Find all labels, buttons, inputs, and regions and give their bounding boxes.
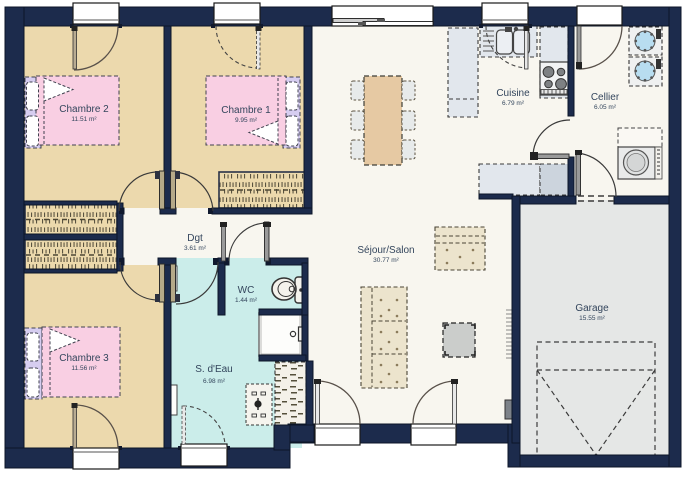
svg-text:30.77 m²: 30.77 m²: [373, 257, 399, 264]
svg-text:9.95 m²: 9.95 m²: [235, 117, 258, 124]
svg-text:Chambre 3: Chambre 3: [59, 353, 109, 364]
svg-text:11.56 m²: 11.56 m²: [71, 365, 97, 372]
svg-text:Séjour/Salon: Séjour/Salon: [357, 245, 414, 256]
svg-text:S. d'Eau: S. d'Eau: [195, 364, 233, 375]
svg-text:6.05 m²: 6.05 m²: [594, 104, 617, 111]
svg-text:Dgt: Dgt: [187, 233, 203, 244]
svg-text:6.79 m²: 6.79 m²: [502, 100, 525, 107]
svg-text:Cellier: Cellier: [591, 92, 620, 103]
svg-text:WC: WC: [238, 285, 255, 296]
svg-text:15.55 m²: 15.55 m²: [579, 315, 605, 322]
svg-text:Chambre 1: Chambre 1: [221, 105, 271, 116]
svg-text:Chambre 2: Chambre 2: [59, 104, 109, 115]
svg-text:11.51 m²: 11.51 m²: [71, 116, 97, 123]
svg-text:1.44 m²: 1.44 m²: [235, 297, 258, 304]
svg-text:6.98 m²: 6.98 m²: [203, 378, 226, 385]
svg-text:Cuisine: Cuisine: [496, 88, 530, 99]
svg-text:3.61 m²: 3.61 m²: [184, 245, 207, 252]
svg-text:Garage: Garage: [575, 303, 609, 314]
